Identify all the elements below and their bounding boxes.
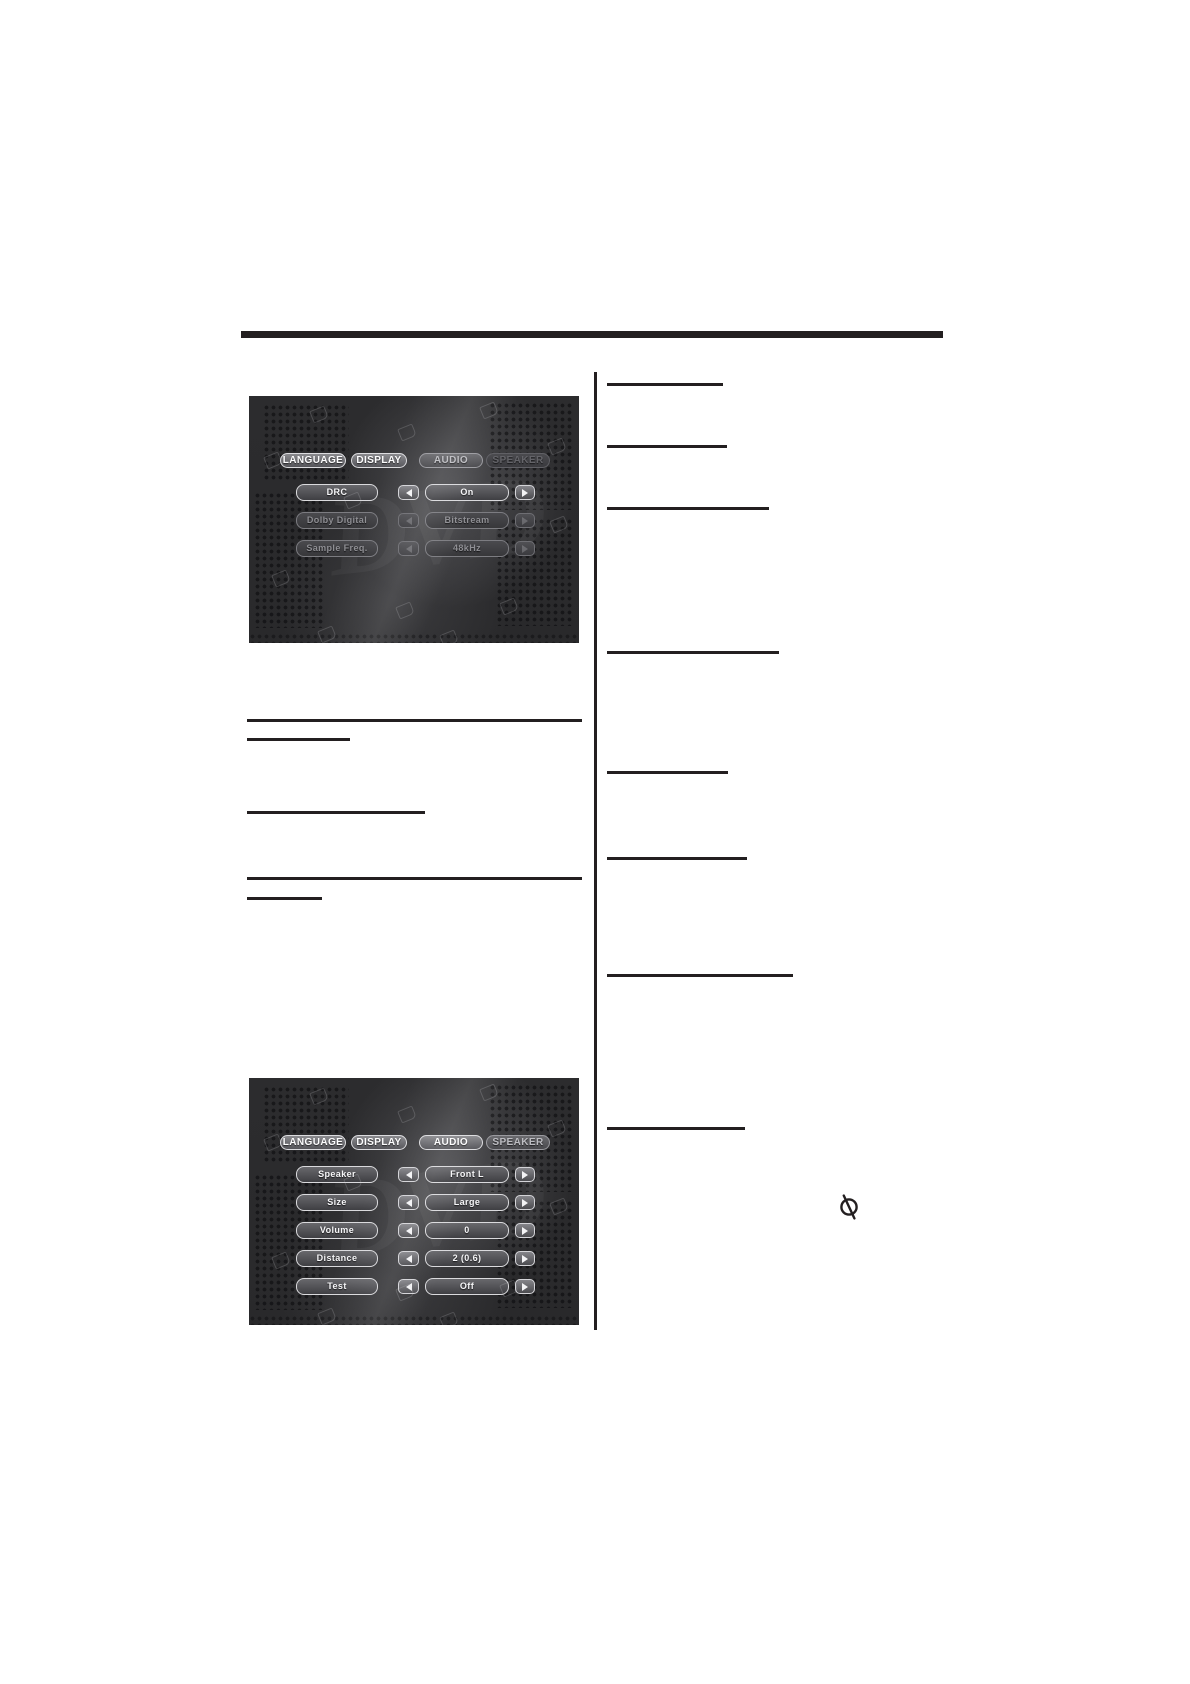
osd-row-volume: Volume0 <box>249 1222 579 1239</box>
right-heading-underline-4 <box>607 651 779 654</box>
left-arrow-icon <box>398 541 419 556</box>
right-arrow-icon <box>515 485 535 500</box>
left-heading-underline-2 <box>247 811 425 814</box>
right-arrow-icon <box>515 1279 535 1294</box>
left-column-rule-2 <box>247 877 582 880</box>
left-arrow-icon <box>398 1167 419 1182</box>
osd-setting-label: Speaker <box>296 1166 378 1183</box>
right-heading-underline-1 <box>607 383 723 386</box>
right-arrow-icon <box>515 513 535 528</box>
left-arrow-icon <box>398 1251 419 1266</box>
osd-setting-value: Front L <box>425 1166 509 1183</box>
right-arrow-icon <box>515 1251 535 1266</box>
left-arrow-icon <box>398 485 419 500</box>
right-heading-underline-6 <box>607 857 747 860</box>
right-arrow-icon <box>515 1195 535 1210</box>
right-heading-underline-5 <box>607 771 728 774</box>
osd-screenshot-speaker-settings: DVD LANGUAGEDISPLAYAUDIOSPEAKER SpeakerF… <box>249 1078 579 1325</box>
right-arrow-icon <box>515 1223 535 1238</box>
osd-setting-label: Size <box>296 1194 378 1211</box>
osd-setting-value: Large <box>425 1194 509 1211</box>
manual-page: DVD LANGUAGEDISPLAYAUDIOSPEAKER DRCOnDol… <box>0 0 1190 1684</box>
left-arrow-icon <box>398 1223 419 1238</box>
osd-setting-value: 2 (0.6) <box>425 1250 509 1267</box>
right-heading-underline-7 <box>607 974 793 977</box>
right-arrow-icon <box>515 1167 535 1182</box>
osd-setting-label: Sample Freq. <box>296 540 378 557</box>
left-heading-underline-1 <box>247 738 350 741</box>
osd-setting-label: Volume <box>296 1222 378 1239</box>
osd-setting-value: Bitstream <box>425 512 509 529</box>
prohibited-icon <box>834 1192 864 1222</box>
osd-setting-value: Off <box>425 1278 509 1295</box>
right-heading-underline-2 <box>607 445 727 448</box>
left-arrow-icon <box>398 1195 419 1210</box>
osd-setting-label: Test <box>296 1278 378 1295</box>
left-column-rule-1 <box>247 719 582 722</box>
osd-setting-value: On <box>425 484 509 501</box>
left-heading-underline-3 <box>247 897 322 900</box>
osd-row-size: SizeLarge <box>249 1194 579 1211</box>
osd-row-distance: Distance2 (0.6) <box>249 1250 579 1267</box>
right-arrow-icon <box>515 541 535 556</box>
osd-setting-label: Dolby Digital <box>296 512 378 529</box>
osd-row-drc: DRCOn <box>249 484 579 501</box>
osd-setting-value: 0 <box>425 1222 509 1239</box>
osd-row-test: TestOff <box>249 1278 579 1295</box>
osd-row-dolby-digital: Dolby DigitalBitstream <box>249 512 579 529</box>
osd-screenshot-audio-settings: DVD LANGUAGEDISPLAYAUDIOSPEAKER DRCOnDol… <box>249 396 579 643</box>
right-heading-underline-8 <box>607 1127 745 1130</box>
osd-setting-value: 48kHz <box>425 540 509 557</box>
right-heading-underline-3 <box>607 507 769 510</box>
section-title-bar <box>241 331 943 338</box>
osd-row-speaker: SpeakerFront L <box>249 1166 579 1183</box>
osd-setting-label: DRC <box>296 484 378 501</box>
osd-row-sample-freq-: Sample Freq.48kHz <box>249 540 579 557</box>
column-divider <box>594 372 597 1330</box>
left-arrow-icon <box>398 513 419 528</box>
osd-setting-label: Distance <box>296 1250 378 1267</box>
